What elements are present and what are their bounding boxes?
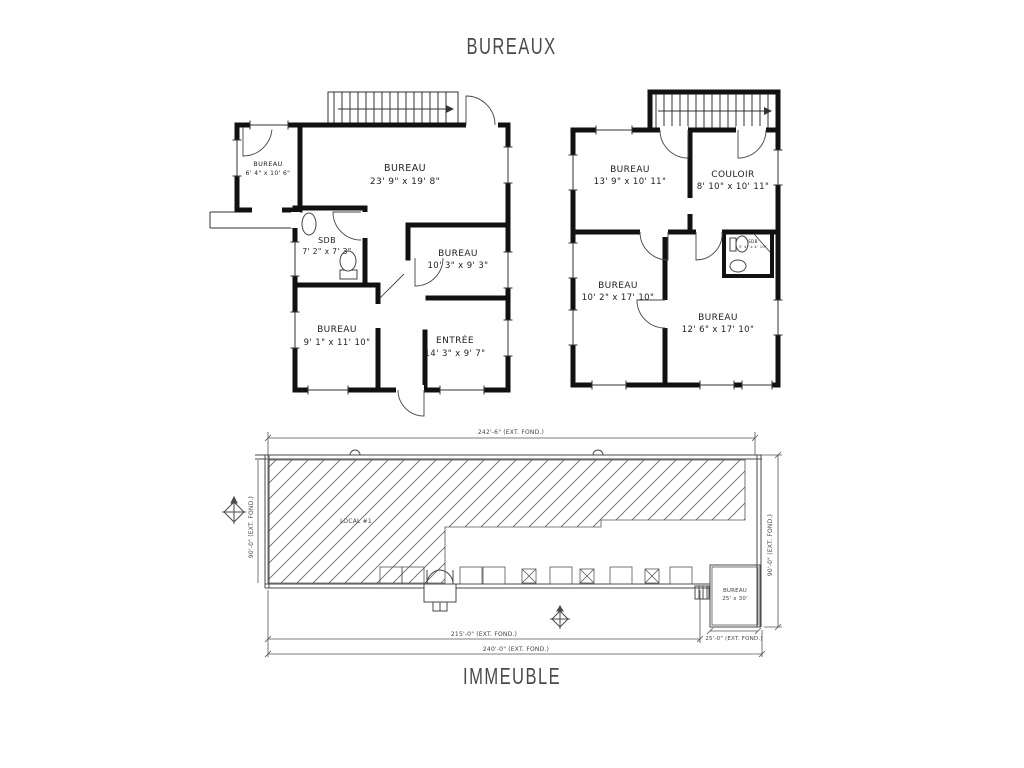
room-dims: 23' 9" x 19' 8": [370, 177, 440, 187]
local-label: LOCAL #1: [340, 518, 372, 525]
room-dims: 25' x 30': [722, 596, 748, 602]
room-label: BUREAU: [598, 281, 638, 291]
floorplans-drawing: BUREAU 6' 4" x 10' 6" BUREAU 23' 9" x 19…: [0, 0, 1024, 768]
window: [742, 381, 772, 390]
window: [774, 300, 783, 335]
stairs-icon: [328, 92, 458, 125]
room-dims: 7' 2" x 7' 3": [302, 247, 351, 256]
dimension-label: 240'-0" (EXT. FOND.): [483, 646, 549, 653]
window: [774, 150, 783, 185]
column-box: [645, 569, 659, 583]
dimension-label: 90'-0" (EXT. FOND.): [248, 496, 255, 558]
room-dims: 12' 6" x 17' 10": [682, 325, 755, 335]
room-label: BUREAU: [317, 325, 357, 335]
room-dims: 14' 3" x 9' 7": [425, 349, 486, 359]
sink-icon: [302, 213, 316, 235]
window: [700, 381, 734, 390]
window: [569, 155, 578, 190]
window: [504, 147, 513, 183]
window: [308, 386, 348, 395]
window: [440, 386, 484, 395]
floor-plan-1: BUREAU 6' 4" x 10' 6" BUREAU 23' 9" x 19…: [210, 92, 508, 416]
room-dims: 9' 1" x 11' 10": [304, 338, 371, 348]
north-arrow-icon: [222, 497, 246, 524]
dimension-label: 215'-0" (EXT. FOND.): [451, 631, 517, 638]
room-label: BUREAU: [253, 160, 282, 168]
column-box: [522, 569, 536, 583]
toilet-icon: [730, 236, 748, 252]
sink-icon: [730, 260, 746, 272]
window: [504, 320, 513, 356]
room-label: BUREAU: [723, 588, 747, 594]
room-dims: 3' 4" x 4' 10": [739, 245, 767, 249]
window: [291, 312, 300, 348]
room-label: BUREAU: [438, 249, 478, 259]
windows-layer: [233, 121, 783, 395]
room-dims: 8' 10" x 10' 11": [697, 182, 770, 192]
north-arrow-icon: [550, 606, 570, 629]
window: [569, 310, 578, 345]
dimension-label: 242'-6" (EXT. FOND.): [478, 429, 544, 436]
building-bureau-room: BUREAU 25' x 30': [710, 565, 760, 627]
window: [250, 121, 288, 130]
room-dims: 6' 4" x 10' 6": [246, 170, 291, 177]
room-label: ENTRÉE: [436, 334, 474, 346]
room-dims: 10' 3" x 9' 3": [428, 261, 489, 271]
building-plan: BUREAU 25' x 30' LOCAL #1 242'-6" (EXT: [222, 429, 782, 657]
page-title-immeuble: IMMEUBLE: [0, 663, 1024, 690]
page-title-bureaux: BUREAUX: [0, 33, 1024, 60]
window: [233, 140, 242, 176]
room-label: BUREAU: [384, 163, 426, 174]
window: [592, 381, 626, 390]
room-dims: 13' 9" x 10' 11": [594, 177, 667, 187]
window: [504, 252, 513, 288]
room-label: BUREAU: [610, 165, 650, 175]
floor-plan-2: BUREAU 13' 9" x 10' 11" COULOIR 8' 10" x…: [573, 92, 778, 385]
window: [569, 243, 578, 278]
column-box: [580, 569, 594, 583]
stairs-icon: [650, 92, 778, 130]
window: [291, 242, 300, 276]
dimension-label: 25'-0" (EXT. FOND.): [705, 636, 762, 642]
room-label: SDB: [748, 239, 758, 244]
room-label: BUREAU: [698, 313, 738, 323]
room-label: SDB: [318, 236, 336, 245]
window: [596, 126, 632, 135]
floorplan-page: BUREAUX: [0, 0, 1024, 768]
room-dims: 10' 2" x 17' 10": [582, 293, 655, 303]
dimension-label: 90'-0" (EXT. FOND.): [767, 514, 774, 576]
room-label: COULOIR: [711, 170, 754, 180]
